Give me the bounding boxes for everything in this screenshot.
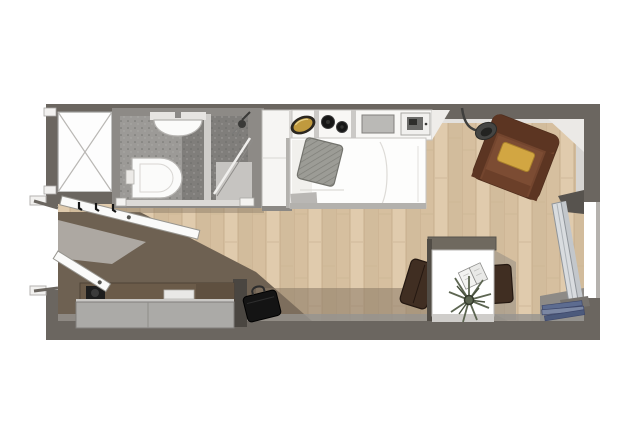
door-stub [240,198,254,206]
bed-frame-foot [290,203,426,209]
wall-right-upper [584,104,600,202]
desk-leg [427,239,432,321]
door-stub [116,198,126,206]
shaft-stub [44,108,56,116]
counter-divider [351,110,356,138]
tray: tray [164,290,194,299]
wall-left-lower [46,290,58,340]
bathroom: bathroom shower shower glass door shower… [112,108,264,208]
cutting-board: cutting board [362,115,394,133]
bathroom-threshold [118,200,244,206]
floor-plan-canvas: Studio apartment floor plan wood floor e… [0,0,640,448]
plant-center [465,296,474,305]
window-outer-frame [596,202,600,298]
shaft-stub [44,186,56,194]
basin-faucet [175,112,181,118]
sideboard-front [76,302,234,328]
desk-back-band [428,237,496,250]
kitchenette: kitchenette kitchen sink cooktop burners… [288,110,450,140]
floor-plan-image: Studio apartment floor plan wood floor e… [0,0,640,448]
toilet-flush [126,170,134,184]
bed: bed pillow [286,137,426,209]
toilet: toilet [126,158,182,198]
microwave: microwave [401,113,430,135]
shower-partition [204,114,211,204]
